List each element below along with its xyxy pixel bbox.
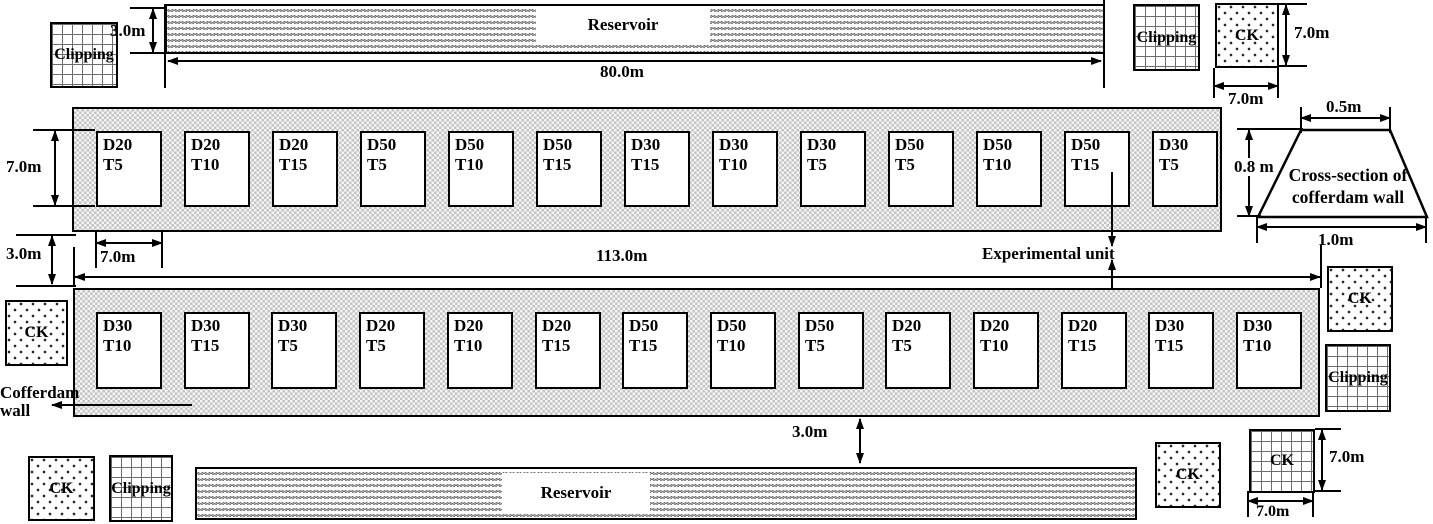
plot-duration-label: T5 [103, 155, 123, 175]
extension-line [164, 4, 166, 88]
plot-duration-label: T10 [719, 155, 747, 175]
plot-duration-label: T10 [454, 336, 482, 356]
plot-duration-label: T15 [1068, 336, 1096, 356]
plot-duration-label: T15 [1155, 336, 1183, 356]
plot-d50-t10: D50T10 [448, 131, 514, 207]
dim-label-113m: 113.0m [596, 247, 647, 265]
ck-label: CK [1235, 27, 1259, 45]
experimental-unit-pointer-top [1111, 172, 1113, 246]
dim-label-3m-gap-bottom: 3.0m [792, 423, 827, 441]
extension-line [33, 205, 95, 207]
plot-duration-label: T15 [543, 155, 571, 175]
extension-line [73, 247, 75, 287]
dim-label-7m-ck-height: 7.0m [1294, 24, 1329, 42]
plot-duration-label: T5 [892, 336, 912, 356]
dim-arrow-7m-bottom-h [1248, 500, 1313, 502]
plot-duration-label: T10 [980, 336, 1008, 356]
plot-d50-t15: D50T15 [622, 312, 688, 389]
ck-plot-bottom-left: CK [28, 456, 95, 521]
plot-d30-t15: D30T15 [1148, 312, 1214, 389]
plot-depth-label: D50 [1071, 135, 1100, 155]
plot-duration-label: T10 [1243, 336, 1271, 356]
plot-depth-label: D30 [103, 316, 132, 336]
cofferdam-wall-label: Cofferdam wall [0, 384, 79, 420]
plot-d30-t10: D30T10 [712, 131, 778, 207]
ck-plot-bottom-right: CK [1155, 442, 1221, 508]
dim-label-0-5m: 0.5m [1326, 98, 1361, 116]
dim-label-7m-plot-width: 7.0m [100, 248, 135, 266]
plot-duration-label: T5 [367, 155, 387, 175]
dim-arrow-1-0m [1257, 226, 1426, 228]
plot-duration-label: T5 [366, 336, 386, 356]
ck-plot-bottom-far-right: CK [1249, 429, 1315, 493]
extension-line [33, 129, 95, 131]
plot-depth-label: D20 [454, 316, 483, 336]
plot-d50-t5: D50T5 [888, 131, 954, 207]
plot-d20-t10: D20T10 [447, 312, 513, 389]
clipping-plot-mid-right: Clipping [1325, 344, 1391, 412]
plot-duration-label: T5 [278, 336, 298, 356]
plot-d30-t10: D30T10 [96, 312, 162, 389]
extension-line [16, 285, 76, 287]
reservoir-bottom [195, 467, 1137, 520]
plot-d20-t10: D20T10 [973, 312, 1039, 389]
plot-depth-label: D30 [191, 316, 220, 336]
plot-d50-t5: D50T5 [360, 131, 426, 207]
cofferdam-wall-pointer [52, 404, 192, 406]
plot-d20-t15: D20T15 [1061, 312, 1127, 389]
cofferdam-wall-label-line1: Cofferdam [0, 384, 79, 402]
plot-d20-t15: D20T15 [272, 131, 338, 207]
extension-line [1103, 0, 1105, 88]
dim-label-7m-plot-height: 7.0m [6, 158, 41, 176]
plot-duration-label: T5 [895, 155, 915, 175]
plot-d20-t10: D20T10 [184, 131, 250, 207]
dim-arrow-7m-ck-height [1285, 5, 1287, 65]
plot-d30-t10: D30T10 [1236, 312, 1302, 389]
plot-depth-label: D20 [103, 135, 132, 155]
plot-duration-label: T15 [279, 155, 307, 175]
dim-arrow-7m-ck-width [1214, 85, 1278, 87]
plot-d30-t5: D30T5 [1152, 131, 1218, 207]
plot-duration-label: T10 [455, 155, 483, 175]
cross-section-label-line2: cofferdam wall [1262, 187, 1433, 209]
clipping-label: Clipping [111, 480, 171, 498]
extension-line [16, 234, 76, 236]
plot-d30-t5: D30T5 [800, 131, 866, 207]
dim-arrow-7m-plot-width [96, 242, 162, 244]
plot-depth-label: D50 [717, 316, 746, 336]
plot-duration-label: T15 [631, 155, 659, 175]
dim-label-80m: 80.0m [600, 63, 644, 81]
dim-arrow-3m-gap-left [51, 236, 53, 284]
extension-line [161, 232, 163, 268]
clipping-label: Clipping [1328, 369, 1388, 387]
plot-d50-t10: D50T10 [710, 312, 776, 389]
plot-depth-label: D30 [807, 135, 836, 155]
ck-label: CK [1176, 466, 1200, 484]
plot-depth-label: D50 [805, 316, 834, 336]
plot-d50-t10: D50T10 [976, 131, 1042, 207]
clipping-plot-top-left: Clipping [50, 22, 118, 88]
plot-d20-t15: D20T15 [535, 312, 601, 389]
plot-duration-label: T10 [103, 336, 131, 356]
ck-plot-top-right: CK [1215, 3, 1279, 68]
reservoir-top-label: Reservoir [536, 7, 710, 42]
plot-depth-label: D20 [542, 316, 571, 336]
plot-duration-label: T15 [1071, 155, 1099, 175]
band-1: D20T5D20T10D20T15D50T5D50T10D50T15D30T15… [72, 107, 1222, 232]
plot-depth-label: D50 [629, 316, 658, 336]
plot-depth-label: D30 [278, 316, 307, 336]
plot-d30-t15: D30T15 [184, 312, 250, 389]
ck-label: CK [1270, 452, 1294, 470]
reservoir-bottom-label: Reservoir [502, 473, 650, 513]
plot-duration-label: T15 [191, 336, 219, 356]
plot-duration-label: T5 [805, 336, 825, 356]
plot-depth-label: D50 [367, 135, 396, 155]
ck-label: CK [1348, 290, 1372, 308]
clipping-plot-bottom-left: Clipping [109, 455, 173, 522]
plot-duration-label: T10 [717, 336, 745, 356]
plot-depth-label: D30 [1243, 316, 1272, 336]
band-2: D30T10D30T15D30T5D20T5D20T10D20T15D50T15… [73, 288, 1320, 417]
plot-d30-t15: D30T15 [624, 131, 690, 207]
plot-depth-label: D20 [366, 316, 395, 336]
plot-duration-label: T15 [542, 336, 570, 356]
dim-label-7m-bottom-v: 7.0m [1329, 448, 1364, 466]
plot-depth-label: D20 [279, 135, 308, 155]
plot-depth-label: D30 [631, 135, 660, 155]
plot-duration-label: T15 [629, 336, 657, 356]
cross-section-label-line1: Cross-section of [1262, 165, 1433, 187]
plot-depth-label: D30 [1159, 135, 1188, 155]
dim-arrow-3m-top [152, 9, 154, 52]
extension-line [130, 52, 164, 54]
ck-label: CK [25, 324, 49, 342]
plot-depth-label: D50 [543, 135, 572, 155]
plot-d30-t5: D30T5 [271, 312, 337, 389]
dim-arrow-3m-gap-bottom [859, 419, 861, 463]
plot-depth-label: D30 [719, 135, 748, 155]
dim-label-1-0m: 1.0m [1318, 231, 1353, 249]
plot-d50-t15: D50T15 [536, 131, 602, 207]
dim-arrow-7m-bottom-v [1321, 430, 1323, 490]
plot-d20-t5: D20T5 [96, 131, 162, 207]
plot-d50-t5: D50T5 [798, 312, 864, 389]
plot-depth-label: D50 [983, 135, 1012, 155]
dim-arrow-7m-plot-height [54, 131, 56, 205]
plot-depth-label: D20 [892, 316, 921, 336]
clipping-label: Clipping [1137, 29, 1197, 47]
dim-label-0-8m: 0.8 m [1232, 158, 1276, 176]
plot-duration-label: T10 [983, 155, 1011, 175]
field-layout-diagram: Clipping 3.0m Reservoir 80.0m Clipping C… [0, 0, 1433, 524]
plot-depth-label: D50 [895, 135, 924, 155]
experimental-unit-label: Experimental unit [982, 245, 1115, 263]
plot-depth-label: D50 [455, 135, 484, 155]
plot-duration-label: T5 [807, 155, 827, 175]
dim-arrow-113m [75, 276, 1320, 278]
dim-label-3m-gap-left: 3.0m [6, 245, 41, 263]
dim-arrow-0-5m [1301, 117, 1390, 119]
cross-section-label: Cross-section of cofferdam wall [1262, 165, 1433, 209]
plot-depth-label: D20 [191, 135, 220, 155]
plot-d50-t15: D50T15 [1064, 131, 1130, 207]
plot-depth-label: D20 [1068, 316, 1097, 336]
plot-d20-t5: D20T5 [359, 312, 425, 389]
clipping-label: Clipping [54, 46, 114, 64]
extension-line [130, 7, 164, 9]
plot-d20-t5: D20T5 [885, 312, 951, 389]
ck-plot-mid-right: CK [1327, 266, 1393, 332]
ck-label: CK [50, 480, 74, 498]
dim-label-3m-top: 3.0m [110, 22, 145, 40]
plot-duration-label: T10 [191, 155, 219, 175]
ck-plot-mid-left: CK [5, 300, 68, 366]
extension-line [95, 232, 97, 268]
plot-depth-label: D30 [1155, 316, 1184, 336]
dim-label-7m-bottom-h: 7.0m [1256, 504, 1289, 521]
clipping-plot-top-right: Clipping [1133, 4, 1200, 71]
plot-depth-label: D20 [980, 316, 1009, 336]
plot-duration-label: T5 [1159, 155, 1179, 175]
